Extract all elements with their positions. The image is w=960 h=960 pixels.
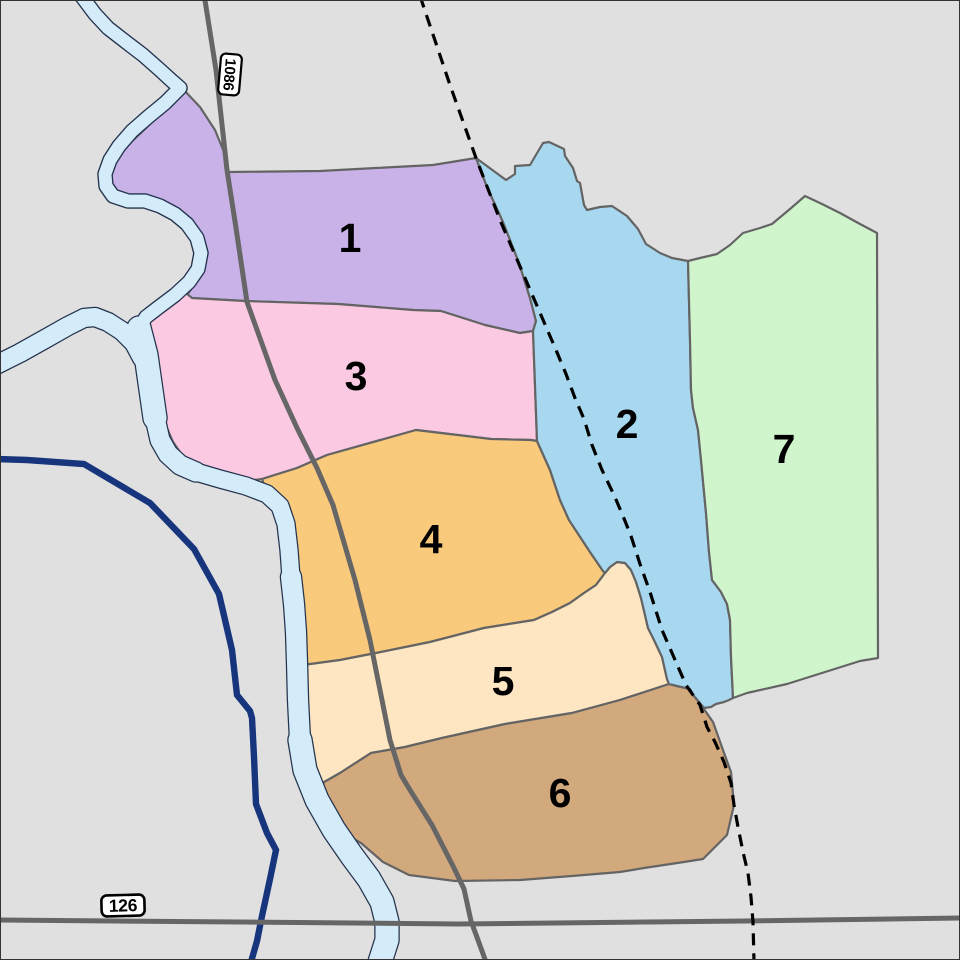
svg-text:1086: 1086 (219, 58, 239, 92)
svg-text:4: 4 (420, 516, 443, 562)
svg-text:7: 7 (773, 426, 796, 472)
svg-text:6: 6 (549, 770, 572, 816)
svg-text:1: 1 (339, 215, 362, 261)
svg-text:126: 126 (109, 895, 138, 916)
svg-text:2: 2 (616, 401, 639, 447)
svg-text:3: 3 (345, 353, 368, 399)
svg-text:5: 5 (492, 658, 515, 704)
